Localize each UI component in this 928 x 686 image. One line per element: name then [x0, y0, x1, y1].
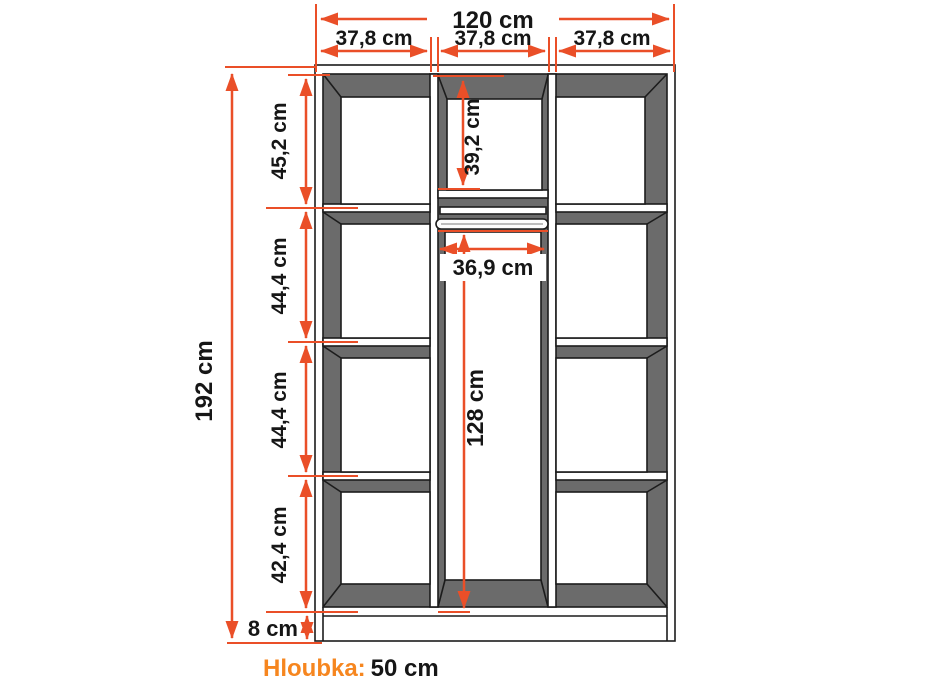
shelf: [556, 472, 667, 480]
total-height-label: 192 cm: [191, 340, 218, 421]
divider-right: [548, 74, 556, 607]
depth-caption: Hloubka:50 cm: [263, 655, 439, 682]
middle-top-height-label: 39,2 cm: [461, 98, 484, 175]
depth-label: Hloubka:: [263, 655, 366, 682]
compartment-back: [341, 358, 430, 472]
wardrobe-dimension-diagram: 120 cm 37,8 cm 37,8 cm 37,8 cm 192 cm 45…: [0, 0, 928, 686]
compartment-back: [556, 224, 647, 338]
compartment-back: [341, 492, 430, 584]
hanging-height-label: 128 cm: [462, 369, 488, 447]
plinth-height-label: 8 cm: [248, 616, 298, 641]
shelf: [556, 338, 667, 346]
left-section-label: 42,4 cm: [268, 506, 291, 583]
left-section-label: 44,4 cm: [268, 237, 291, 314]
depth-value: 50 cm: [371, 655, 439, 682]
cabinet: [315, 65, 675, 641]
shelf: [556, 204, 667, 212]
left-section-label: 44,4 cm: [268, 371, 291, 448]
compartment-back: [341, 97, 430, 204]
divider-left: [430, 74, 438, 607]
section-width-label: 37,8 cm: [335, 27, 412, 50]
section-width-label: 37,8 cm: [454, 27, 531, 50]
hanging-space-back: [445, 232, 541, 580]
left-section-label: 45,2 cm: [268, 102, 291, 179]
compartment-back: [341, 224, 430, 338]
compartment-back: [556, 492, 647, 584]
shelf-front-edge: [440, 207, 546, 214]
section-width-label: 37,8 cm: [573, 27, 650, 50]
shelf: [438, 190, 548, 198]
rod-width-label: 36,9 cm: [453, 255, 534, 280]
compartment-back: [556, 97, 645, 204]
diagram-svg: 120 cm 37,8 cm 37,8 cm 37,8 cm 192 cm 45…: [0, 0, 928, 686]
compartment-back: [556, 358, 647, 472]
